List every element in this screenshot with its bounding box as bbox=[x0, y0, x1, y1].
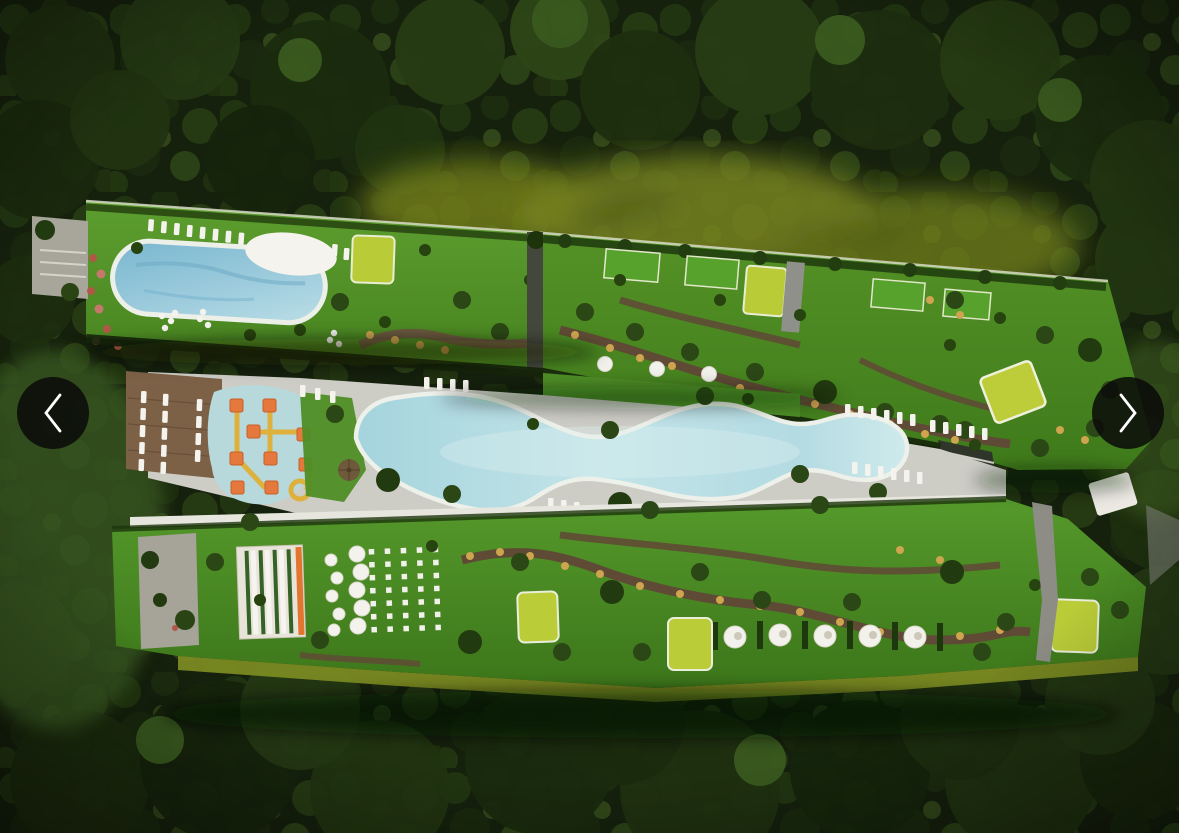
carousel-prev-button[interactable] bbox=[17, 377, 89, 449]
vignette bbox=[0, 0, 1179, 833]
chevron-left-icon bbox=[39, 390, 67, 436]
carousel-next-button[interactable] bbox=[1092, 377, 1164, 449]
chevron-right-icon bbox=[1114, 390, 1142, 436]
aerial-resort-render bbox=[0, 0, 1179, 833]
photo-carousel bbox=[0, 0, 1179, 833]
